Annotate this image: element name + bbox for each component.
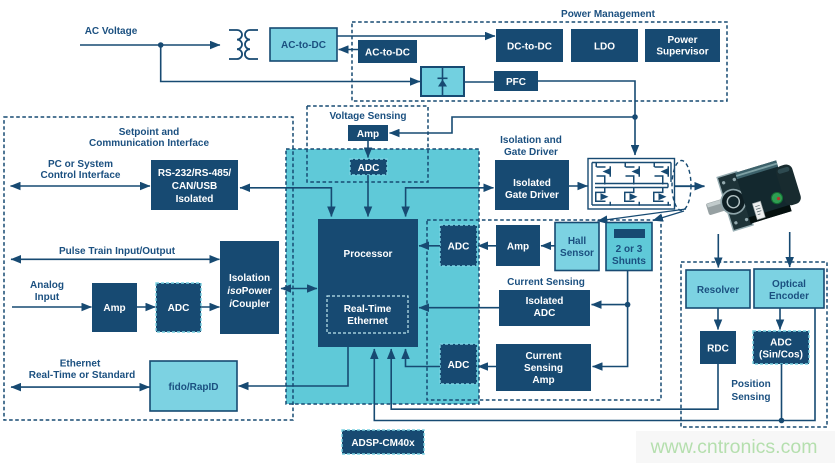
svg-text:ADC: ADC xyxy=(358,163,380,174)
svg-text:RS-232/RS-485/: RS-232/RS-485/ xyxy=(158,168,232,179)
svg-text:Pulse Train Input/Output: Pulse Train Input/Output xyxy=(59,246,176,257)
svg-text:Power Management: Power Management xyxy=(561,9,656,20)
svg-text:AC-to-DC: AC-to-DC xyxy=(281,40,326,51)
svg-text:Isolated: Isolated xyxy=(526,296,564,307)
svg-text:Sensor: Sensor xyxy=(560,248,594,259)
svg-text:Real-Time or Standard: Real-Time or Standard xyxy=(29,370,136,381)
svg-text:iCoupler: iCoupler xyxy=(229,299,270,310)
svg-text:Sensing: Sensing xyxy=(524,363,563,374)
svg-text:Isolated: Isolated xyxy=(176,194,214,205)
svg-text:Current Sensing: Current Sensing xyxy=(507,277,585,288)
svg-text:Power: Power xyxy=(667,35,697,46)
svg-text:Ethernet: Ethernet xyxy=(60,359,101,370)
svg-text:Supervisor: Supervisor xyxy=(656,47,708,58)
svg-text:Control Interface: Control Interface xyxy=(40,170,120,181)
svg-text:AC-to-DC: AC-to-DC xyxy=(365,48,410,59)
svg-text:Isolated: Isolated xyxy=(513,178,551,189)
svg-text:Gate Driver: Gate Driver xyxy=(504,147,558,158)
svg-text:Ethernet: Ethernet xyxy=(347,316,388,327)
svg-text:Current: Current xyxy=(525,351,562,362)
svg-text:fido/RapID: fido/RapID xyxy=(169,382,219,393)
svg-text:Communication Interface: Communication Interface xyxy=(89,138,209,149)
svg-text:ADSP-CM40x: ADSP-CM40x xyxy=(351,438,415,449)
svg-text:Analog: Analog xyxy=(30,280,64,291)
svg-text:AC Voltage: AC Voltage xyxy=(85,26,138,37)
svg-text:PC or System: PC or System xyxy=(48,159,113,170)
svg-text:Encoder: Encoder xyxy=(769,291,809,302)
svg-text:Input: Input xyxy=(35,292,60,303)
svg-text:ADC: ADC xyxy=(534,308,556,319)
svg-text:Processor: Processor xyxy=(344,249,393,260)
svg-text:Optical: Optical xyxy=(772,279,806,290)
svg-text:RDC: RDC xyxy=(707,344,729,355)
svg-text:CAN/USB: CAN/USB xyxy=(172,181,218,192)
svg-text:Voltage Sensing: Voltage Sensing xyxy=(329,111,406,122)
svg-text:Setpoint and: Setpoint and xyxy=(119,127,180,138)
svg-text:(Sin/Cos): (Sin/Cos) xyxy=(759,350,803,361)
svg-text:ADC: ADC xyxy=(770,338,792,349)
svg-text:ADC: ADC xyxy=(448,242,470,253)
svg-text:Position: Position xyxy=(731,379,770,390)
svg-text:Gate Driver: Gate Driver xyxy=(505,190,559,201)
svg-text:Amp: Amp xyxy=(357,129,379,140)
svg-text:Isolation: Isolation xyxy=(229,273,270,284)
svg-text:Hall: Hall xyxy=(568,236,587,247)
svg-text:Amp: Amp xyxy=(507,242,529,253)
svg-text:Isolation and: Isolation and xyxy=(500,135,562,146)
svg-text:Sensing: Sensing xyxy=(732,392,771,403)
svg-text:ADC: ADC xyxy=(168,303,190,314)
svg-text:ADC: ADC xyxy=(448,360,470,371)
svg-text:Real-Time: Real-Time xyxy=(344,304,392,315)
svg-text:DC-to-DC: DC-to-DC xyxy=(507,42,552,53)
svg-text:LDO: LDO xyxy=(594,42,615,53)
svg-text:isoPower: isoPower xyxy=(227,286,272,297)
svg-text:2 or 3: 2 or 3 xyxy=(616,244,643,255)
svg-text:PFC: PFC xyxy=(506,77,526,88)
svg-text:www.cntronics.com: www.cntronics.com xyxy=(650,436,818,458)
svg-text:Shunts: Shunts xyxy=(612,256,646,267)
svg-text:Amp: Amp xyxy=(103,303,125,314)
svg-text:Amp: Amp xyxy=(532,375,554,386)
svg-text:Resolver: Resolver xyxy=(697,285,739,296)
